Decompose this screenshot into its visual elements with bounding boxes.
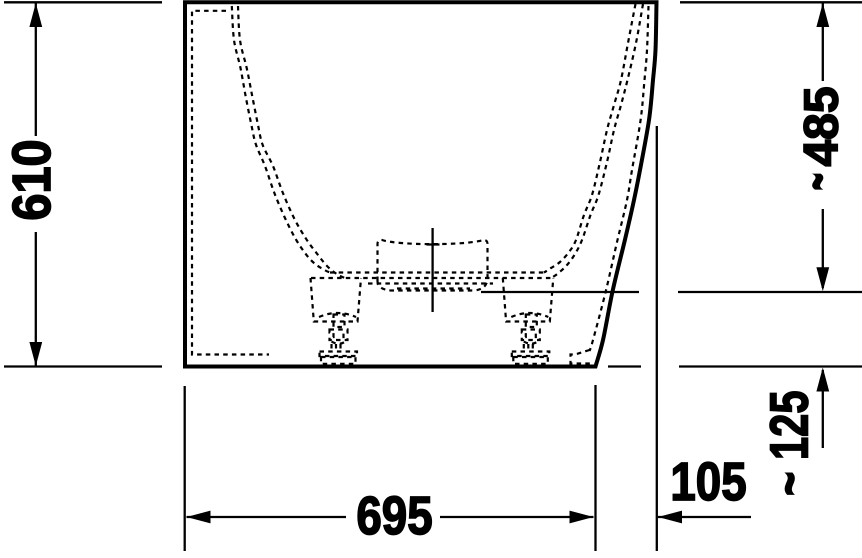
svg-text:~: ~ xyxy=(784,173,851,191)
svg-text:485: 485 xyxy=(796,86,849,166)
svg-text:610: 610 xyxy=(2,139,62,220)
svg-text:105: 105 xyxy=(670,452,746,512)
svg-text:~ 125: ~ 125 xyxy=(760,390,820,495)
svg-text:695: 695 xyxy=(356,486,432,546)
